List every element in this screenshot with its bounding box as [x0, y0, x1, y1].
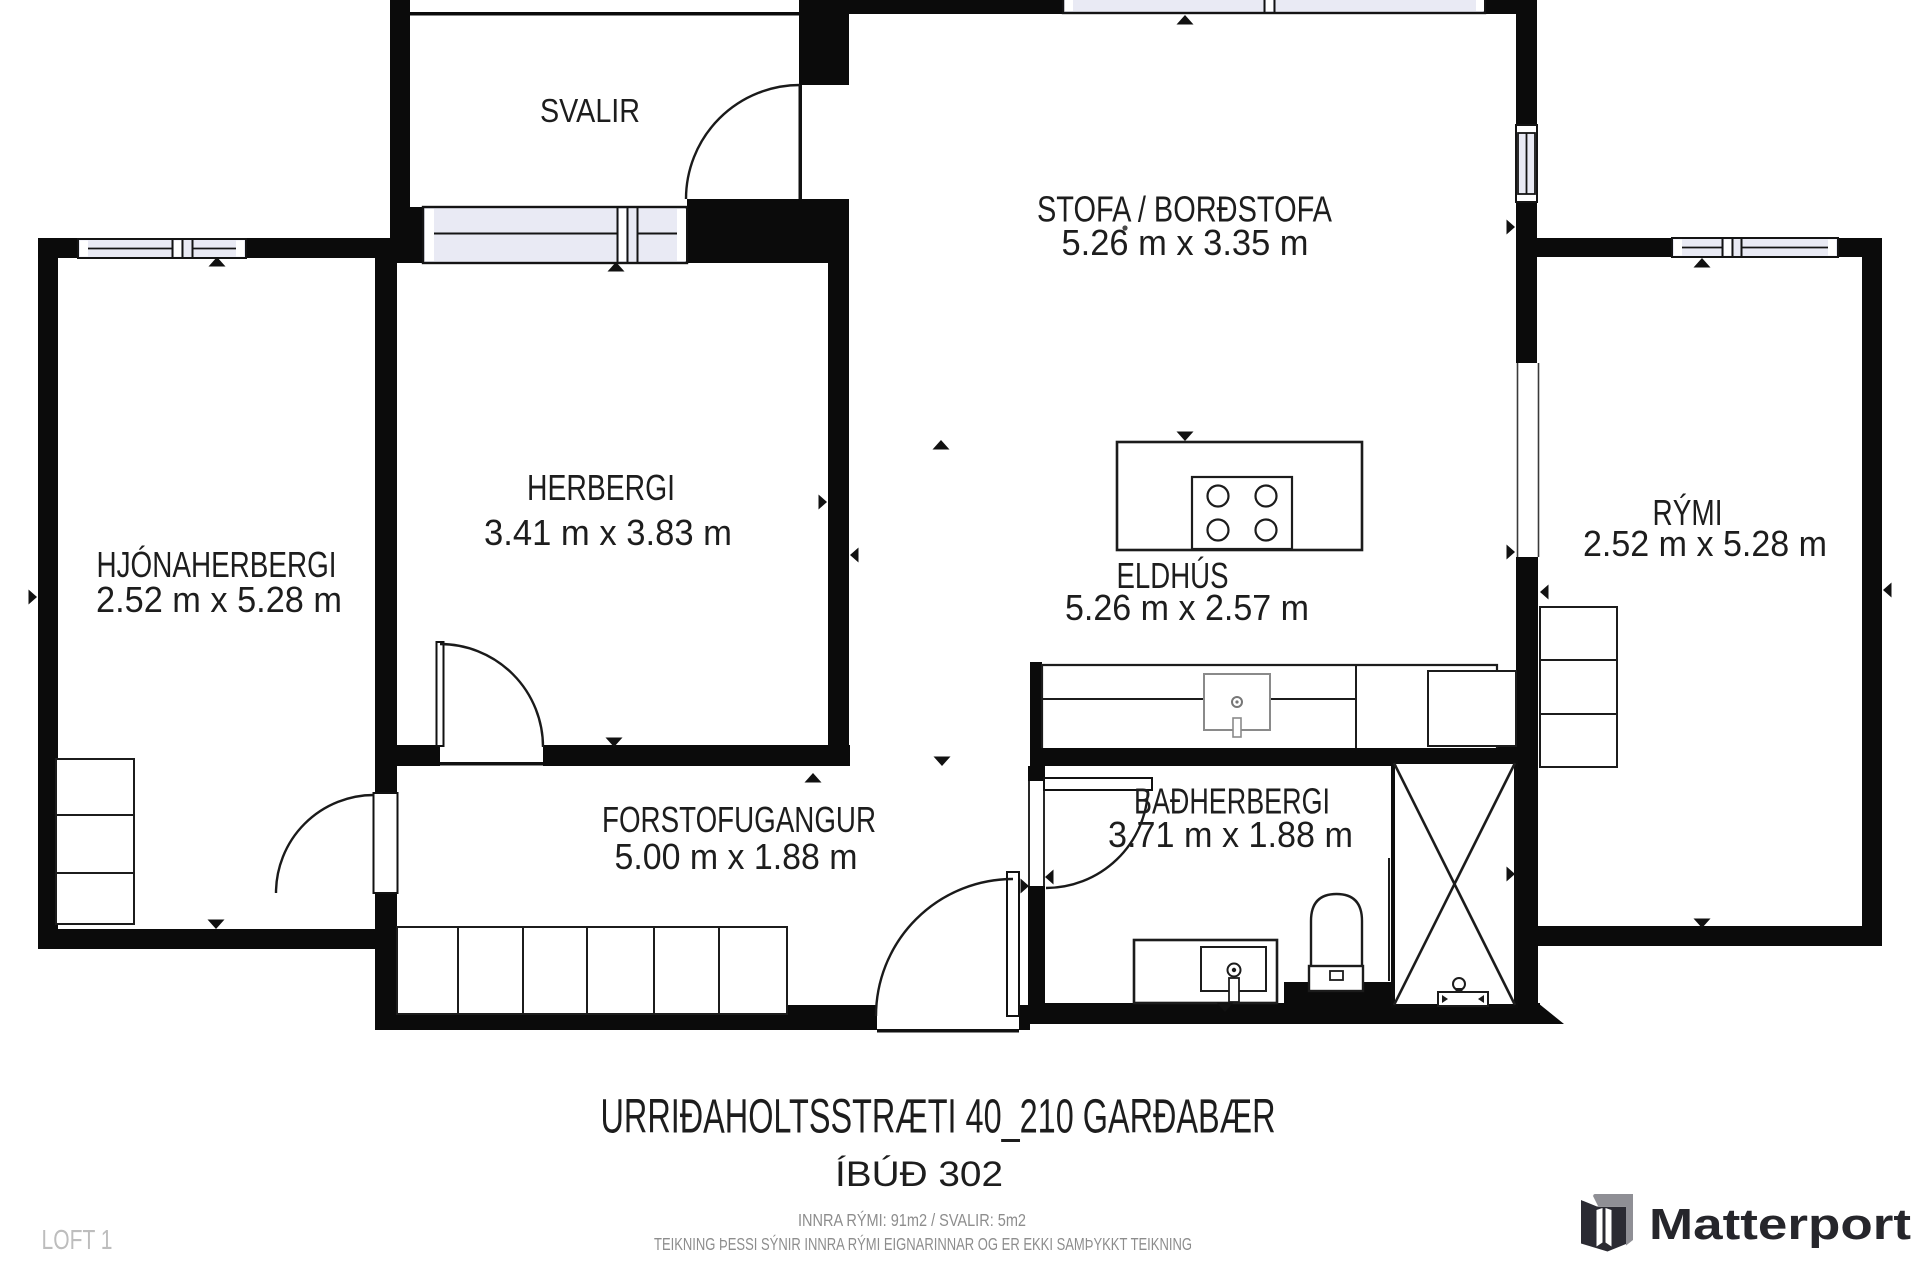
svg-text:URRIĐAHOLTSSTRÆTI 40_210 GARĐA: URRIĐAHOLTSSTRÆTI 40_210 GARĐABÆR — [601, 1091, 1276, 1144]
svg-text:LOFT 1: LOFT 1 — [42, 1224, 113, 1255]
svg-text:INNRA RÝMI: 91m2 / SVALIR: 5: INNRA RÝMI: 91m2 / SVALIR: 5m2 — [798, 1210, 1026, 1230]
svg-text:3.71 m x 1.88 m: 3.71 m x 1.88 m — [1108, 814, 1353, 855]
svg-text:5.26 m x 2.57 m: 5.26 m x 2.57 m — [1065, 587, 1309, 628]
svg-text:ÍBÚĐ 302: ÍBÚĐ 302 — [835, 1155, 1003, 1194]
svg-text:5.00 m x 1.88 m: 5.00 m x 1.88 m — [615, 836, 858, 877]
svg-text:5.26 m x 3.35 m: 5.26 m x 3.35 m — [1062, 222, 1309, 263]
svg-text:Matterport: Matterport — [1649, 1200, 1911, 1249]
svg-text:TEIKNING ÞESSI SÝNIR INNRA RÝM: TEIKNING ÞESSI SÝNIR INNRA RÝMI EIGNARIN… — [654, 1234, 1192, 1254]
svg-text:2.52 m x 5.28 m: 2.52 m x 5.28 m — [96, 579, 342, 620]
svg-text:HERBERGI: HERBERGI — [527, 467, 675, 508]
svg-text:2.52 m x 5.28 m: 2.52 m x 5.28 m — [1583, 523, 1827, 564]
svg-text:3.41 m x 3.83 m: 3.41 m x 3.83 m — [484, 512, 732, 553]
svg-text:SVALIR: SVALIR — [540, 92, 640, 129]
svg-text:FORSTOFUGANGUR: FORSTOFUGANGUR — [602, 799, 876, 840]
